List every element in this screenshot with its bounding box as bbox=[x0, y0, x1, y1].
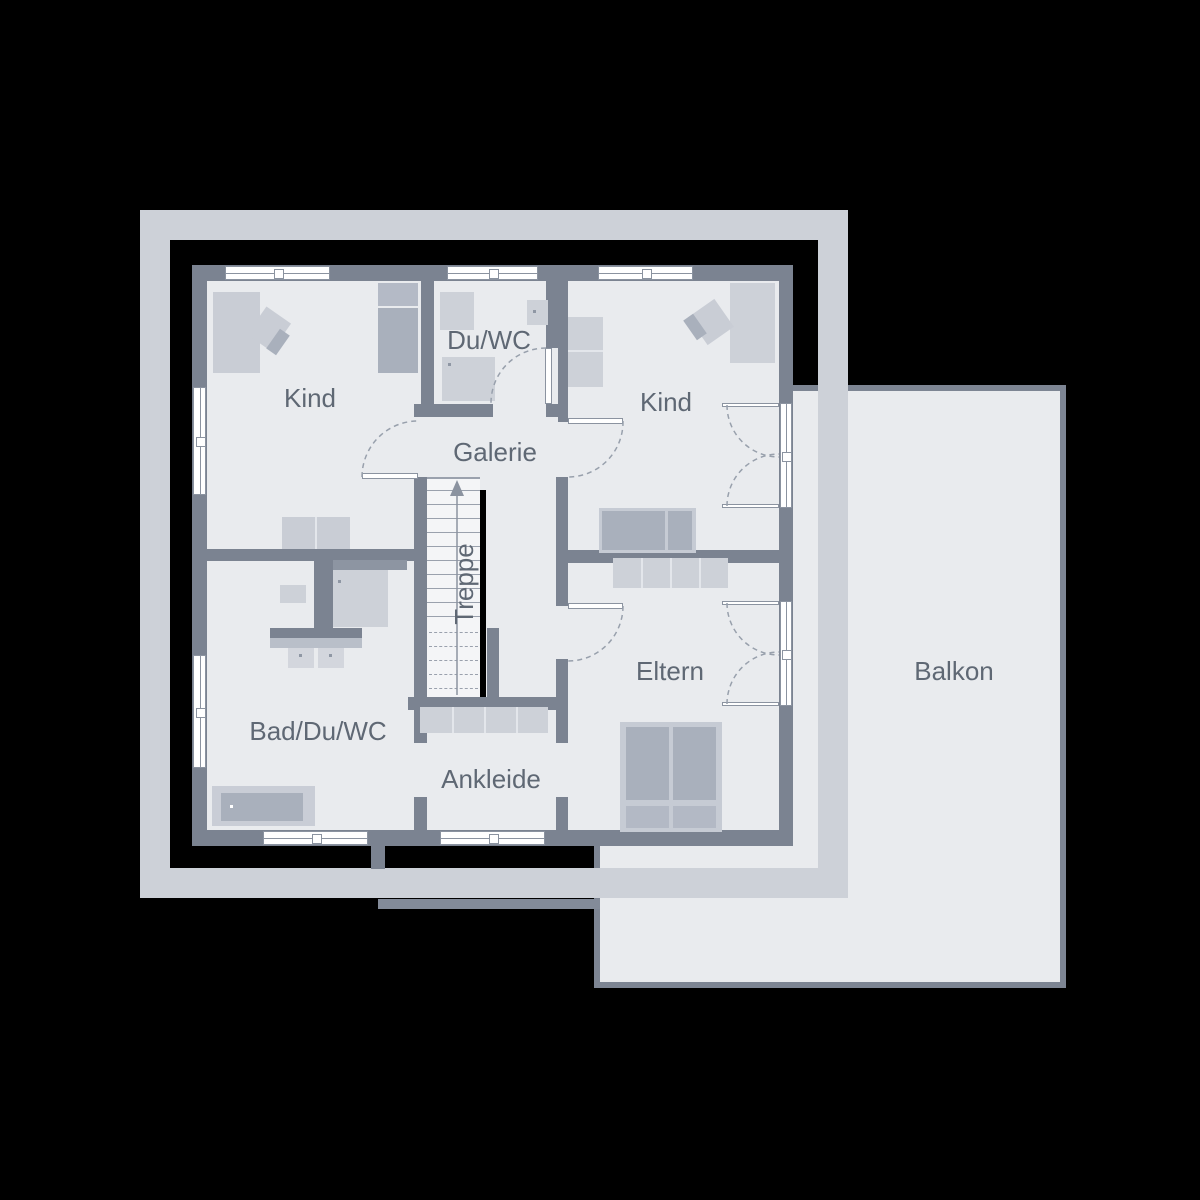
room-label-bad-du-wc: Bad/Du/WC bbox=[249, 718, 386, 744]
door-arc-kindright bbox=[568, 421, 623, 477]
door-swing-overlay bbox=[0, 0, 1200, 1200]
room-label-treppe: Treppe bbox=[451, 543, 477, 624]
door-arc-frenchdoor-kindright-lower bbox=[727, 454, 779, 506]
room-label-du-wc: Du/WC bbox=[447, 327, 531, 353]
room-label-balkon: Balkon bbox=[914, 658, 994, 684]
door-arc-eltern bbox=[568, 606, 623, 661]
room-label-galerie: Galerie bbox=[453, 439, 537, 465]
room-label-kind-right: Kind bbox=[640, 389, 692, 415]
door-arc-kindleft bbox=[362, 421, 418, 477]
stair-direction-arrow bbox=[450, 480, 464, 496]
door-arc-duwc bbox=[491, 348, 546, 404]
door-arc-frenchdoor-eltern-upper bbox=[727, 603, 779, 655]
floor-plan-canvas: Kind Du/WC Kind Galerie Treppe Eltern Ba… bbox=[0, 0, 1200, 1200]
room-label-ankleide: Ankleide bbox=[441, 766, 541, 792]
room-label-eltern: Eltern bbox=[636, 658, 704, 684]
room-label-kind-left: Kind bbox=[284, 385, 336, 411]
door-arc-frenchdoor-kindright-upper bbox=[727, 405, 779, 457]
door-arc-frenchdoor-eltern-lower bbox=[727, 652, 779, 704]
